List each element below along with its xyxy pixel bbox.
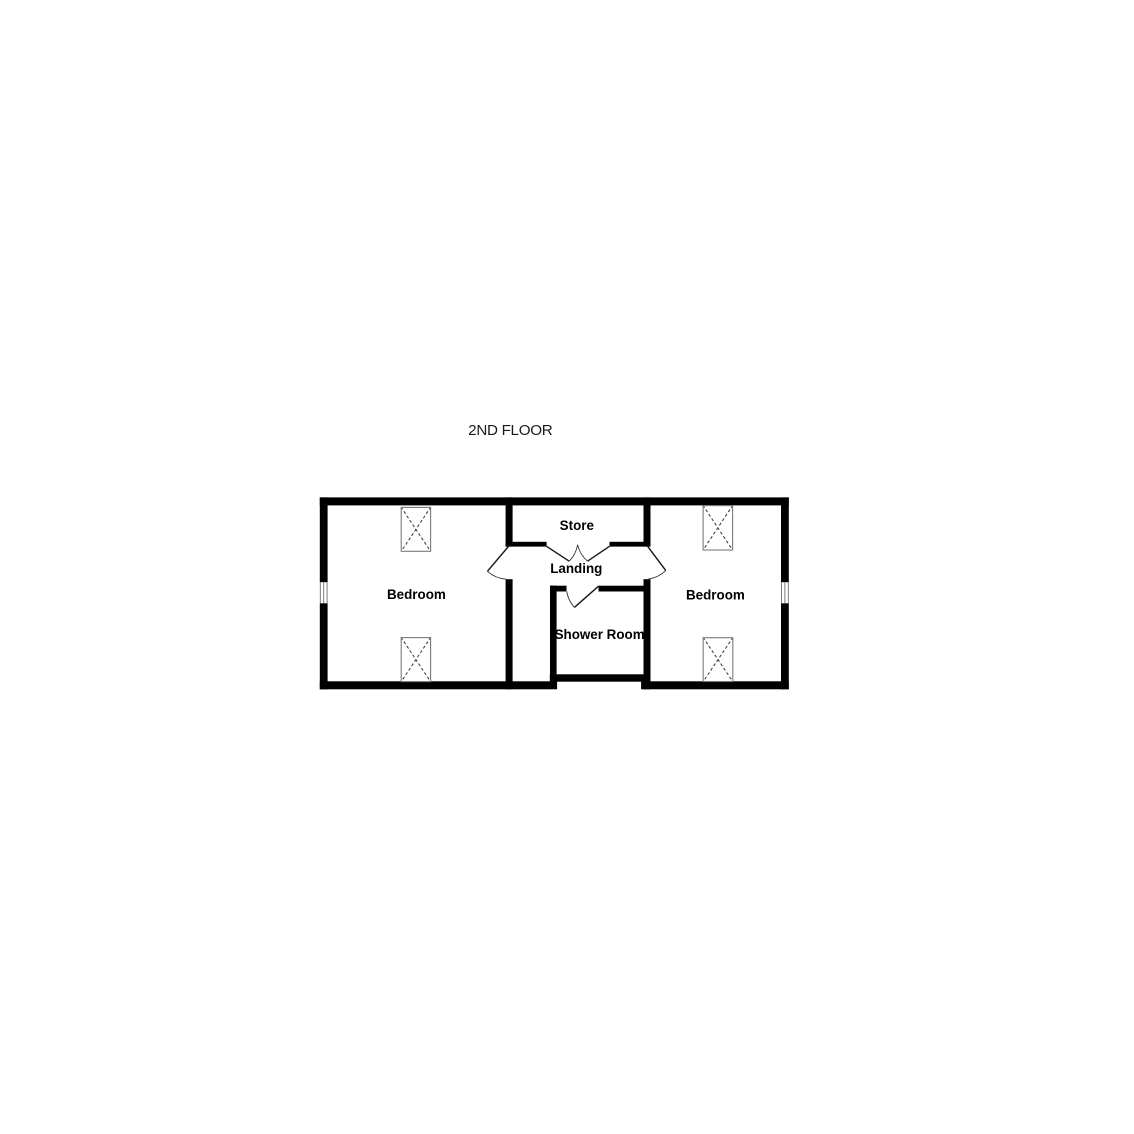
svg-text:Bedroom: Bedroom — [387, 587, 446, 602]
svg-text:Store: Store — [560, 518, 594, 533]
svg-text:Shower Room: Shower Room — [555, 627, 645, 642]
svg-text:Bedroom: Bedroom — [686, 587, 745, 602]
svg-text:Landing: Landing — [550, 561, 602, 576]
svg-text:2ND FLOOR: 2ND FLOOR — [468, 422, 553, 439]
